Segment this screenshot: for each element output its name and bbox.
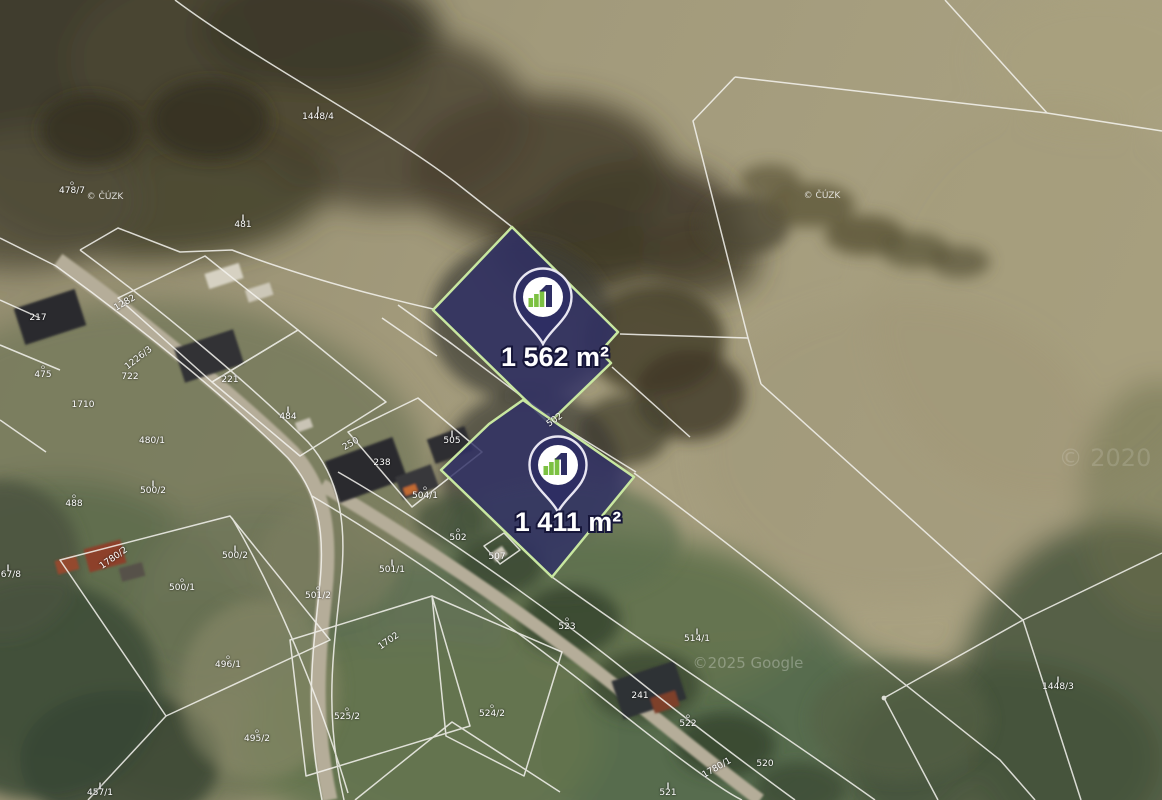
svg-text:507: 507: [488, 552, 505, 562]
svg-text:1448/3: 1448/3: [1042, 682, 1074, 692]
satellite-imagery: [0, 0, 1162, 800]
svg-text:480/1: 480/1: [139, 436, 165, 446]
parcel-number: 221: [221, 375, 238, 385]
copyright-watermark: ©2025 Google: [693, 654, 804, 672]
satellite-map-view[interactable]: ǁ1448/4o478/7ǁ4811282217o4751226/3722221…: [0, 0, 1162, 800]
svg-text:505: 505: [443, 436, 460, 446]
svg-text:1448/4: 1448/4: [302, 112, 334, 122]
svg-text:502: 502: [449, 533, 466, 543]
svg-text:238: 238: [373, 458, 390, 468]
svg-text:488: 488: [65, 499, 82, 509]
satellite-map-canvas[interactable]: ǁ1448/4o478/7ǁ4811282217o4751226/3722221…: [0, 0, 1162, 800]
svg-text:478/7: 478/7: [59, 186, 85, 196]
svg-text:217: 217: [29, 313, 46, 323]
svg-text:484: 484: [279, 412, 296, 422]
svg-text:722: 722: [121, 372, 138, 382]
copyright-watermark: © ČÚZK: [804, 189, 842, 201]
svg-text:475: 475: [34, 370, 51, 380]
svg-text:501/1: 501/1: [379, 565, 405, 575]
svg-text:501/2: 501/2: [305, 591, 331, 601]
svg-text:481: 481: [234, 220, 251, 230]
parcel-number: 722: [121, 372, 138, 382]
svg-text:221: 221: [221, 375, 238, 385]
parcel-number: 520: [756, 759, 773, 769]
svg-text:514/1: 514/1: [684, 634, 710, 644]
parcel-number: 480/1: [139, 436, 165, 446]
svg-text:495/2: 495/2: [244, 734, 270, 744]
svg-text:521: 521: [659, 788, 676, 798]
svg-text:520: 520: [756, 759, 773, 769]
svg-text:241: 241: [631, 691, 648, 701]
svg-text:496/1: 496/1: [215, 660, 241, 670]
parcel-1562-area-label: 1 562 m²: [501, 342, 609, 372]
parcel-1411-area-label: 1 411 m²: [515, 507, 622, 537]
parcel-number: 1710: [72, 400, 95, 410]
svg-text:500/2: 500/2: [140, 486, 166, 496]
svg-text:504/1: 504/1: [412, 491, 438, 501]
svg-text:522: 522: [679, 719, 696, 729]
svg-text:457/1: 457/1: [87, 788, 113, 798]
copyright-watermark: © ČÚZK: [87, 190, 125, 202]
svg-text:567/8: 567/8: [0, 570, 21, 580]
svg-text:523: 523: [558, 622, 575, 632]
svg-text:525/2: 525/2: [334, 712, 360, 722]
parcel-number: 238: [373, 458, 390, 468]
parcel-number: 507: [488, 552, 505, 562]
svg-text:524/2: 524/2: [479, 709, 505, 719]
svg-text:500/2: 500/2: [222, 551, 248, 561]
parcel-number: 241: [631, 691, 648, 701]
svg-text:500/1: 500/1: [169, 583, 195, 593]
copyright-watermark: © 2020: [1059, 444, 1152, 472]
svg-text:1710: 1710: [72, 400, 95, 410]
parcel-number: 217: [29, 313, 46, 323]
